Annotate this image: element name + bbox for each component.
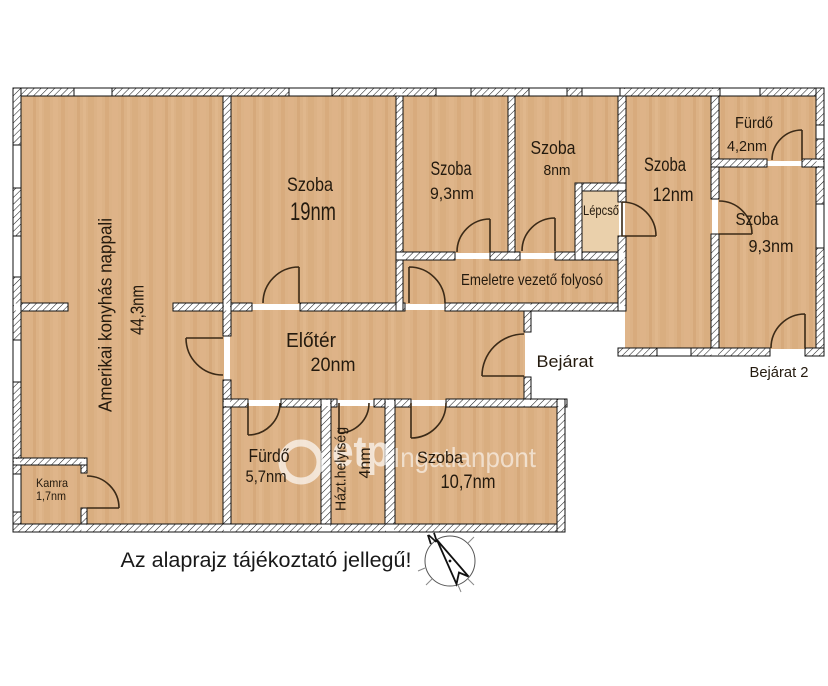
svg-text:Kamra: Kamra — [36, 476, 68, 490]
svg-text:Szoba: Szoba — [736, 209, 779, 229]
svg-text:Szoba: Szoba — [531, 137, 577, 158]
svg-text:8nm: 8nm — [544, 162, 571, 179]
svg-text:Bejárat: Bejárat — [537, 353, 594, 371]
svg-text:Az alaprajz tájékoztató jelleg: Az alaprajz tájékoztató jellegű! — [121, 549, 412, 572]
svg-text:Amerikai konyhás nappali: Amerikai konyhás nappali — [95, 218, 115, 412]
svg-text:1,7nm: 1,7nm — [36, 489, 66, 503]
svg-text:44,3nm: 44,3nm — [127, 285, 147, 335]
svg-text:12nm: 12nm — [653, 185, 694, 206]
svg-text:Fürdő: Fürdő — [735, 115, 773, 132]
svg-text:Lépcső: Lépcső — [583, 203, 619, 218]
svg-text:Szoba: Szoba — [431, 159, 472, 180]
svg-text:Előtér: Előtér — [286, 330, 336, 352]
svg-text:10,7nm: 10,7nm — [441, 471, 496, 493]
svg-text:Szoba: Szoba — [287, 174, 333, 196]
svg-text:Ingatlanpont: Ingatlanpont — [393, 442, 536, 473]
svg-text:Szoba: Szoba — [644, 155, 686, 176]
svg-text:5,7nm: 5,7nm — [246, 468, 287, 486]
svg-text:Bejárat 2: Bejárat 2 — [750, 365, 809, 381]
svg-text:4nm: 4nm — [357, 448, 374, 479]
svg-text:4,2nm: 4,2nm — [727, 138, 767, 155]
svg-text:20nm: 20nm — [311, 355, 356, 376]
svg-text:Szoba: Szoba — [417, 448, 464, 467]
svg-text:9,3nm: 9,3nm — [430, 184, 474, 203]
svg-text:9,3nm: 9,3nm — [749, 236, 794, 256]
svg-text:19nm: 19nm — [290, 198, 336, 226]
svg-text:Házt.helyiség: Házt.helyiség — [332, 427, 349, 511]
svg-text:Emeletre vezető folyosó: Emeletre vezető folyosó — [461, 272, 603, 289]
svg-text:Fürdő: Fürdő — [249, 446, 290, 466]
